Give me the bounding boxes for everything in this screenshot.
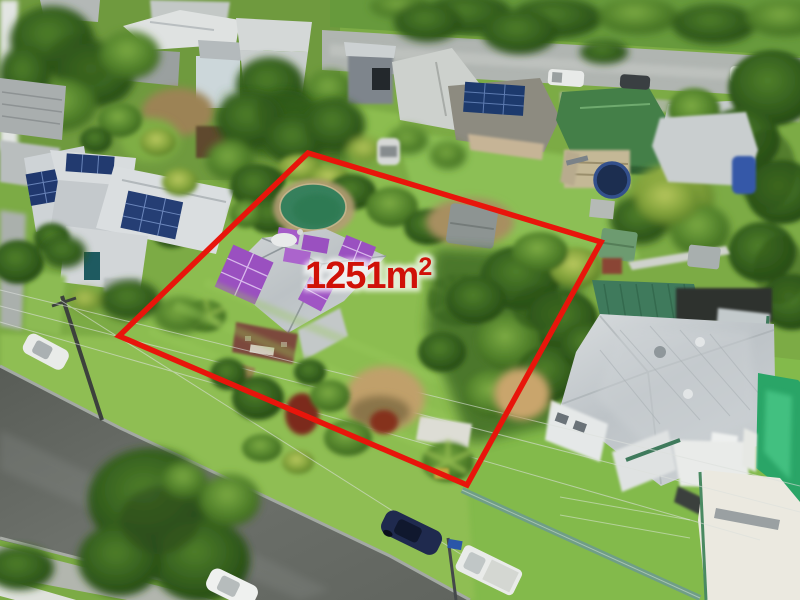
svg-text:1251m2: 1251m2 xyxy=(305,253,431,297)
